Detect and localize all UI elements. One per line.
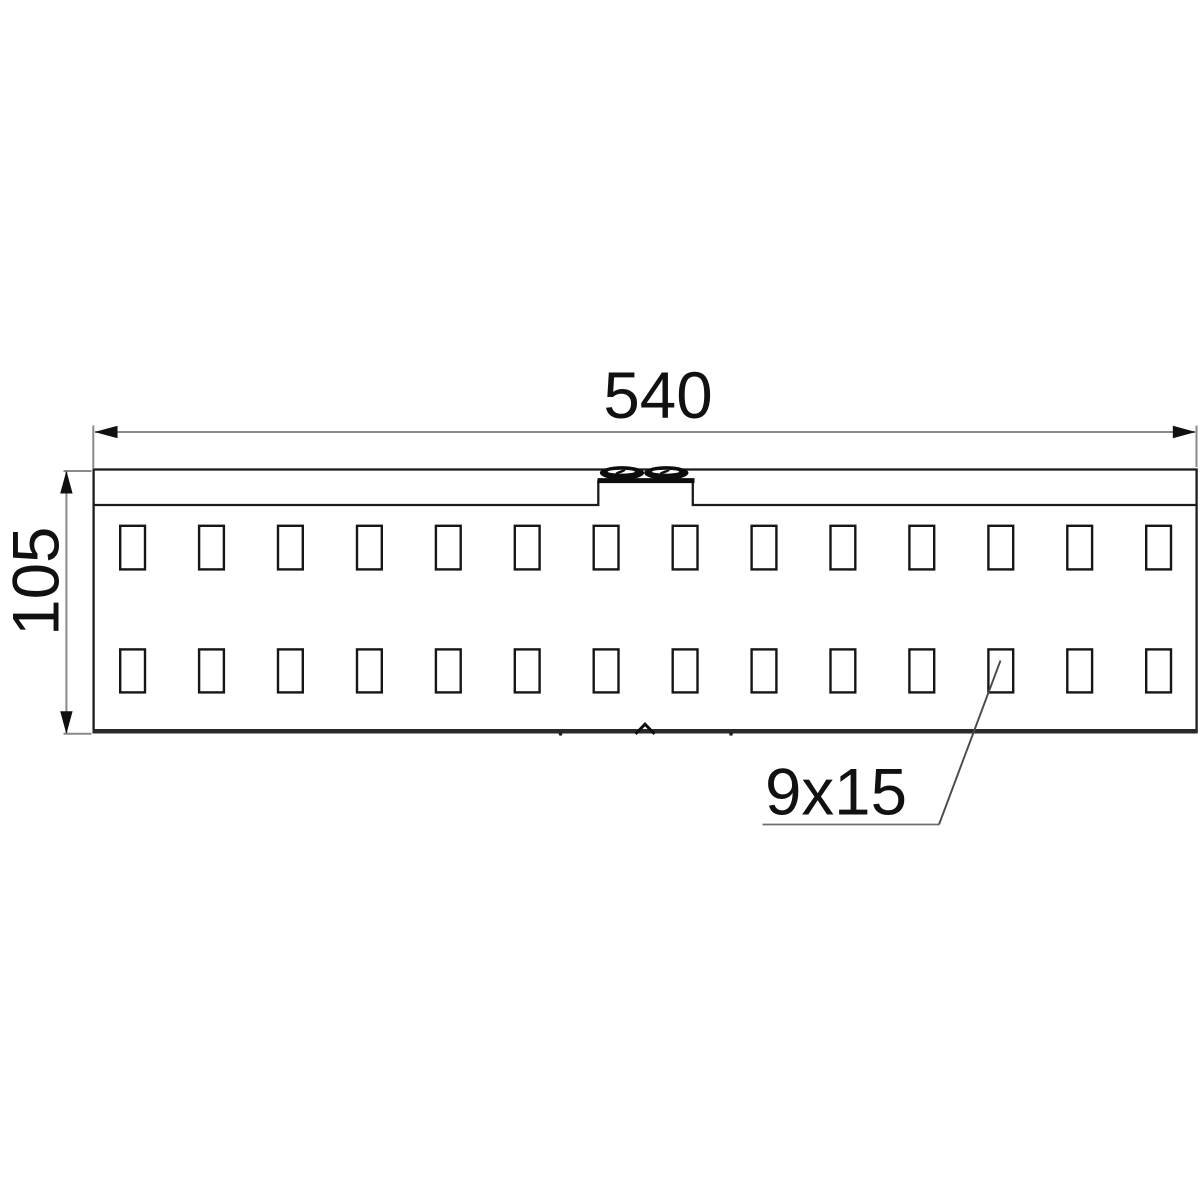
svg-text:540: 540 xyxy=(603,359,712,432)
svg-text:9x15: 9x15 xyxy=(765,756,907,829)
svg-text:105: 105 xyxy=(0,527,72,636)
